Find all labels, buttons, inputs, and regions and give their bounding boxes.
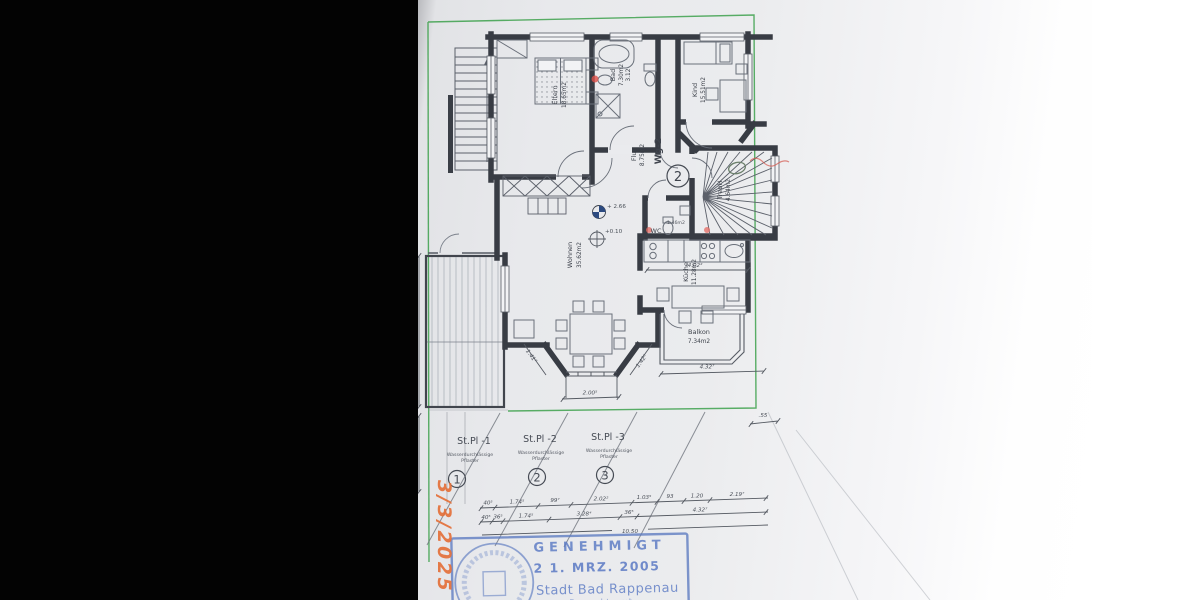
room-area-treph: 4.64m2 xyxy=(726,179,732,202)
dim-r1-4: 2.02² xyxy=(594,496,609,503)
stall2-surface-line1: Wasserdurchlässige xyxy=(518,450,564,456)
stall1-label: St.Pl -1 xyxy=(457,436,491,447)
dim-balcony: 4.32⁷ xyxy=(700,364,715,371)
room-width-bad: 3.12 xyxy=(626,68,632,81)
stamp-date-text: 2 1. MRZ. 2005 xyxy=(533,558,660,576)
dim-r1-3: 99⁷ xyxy=(550,497,560,504)
room-area-flur: 8.75m2 xyxy=(640,144,646,167)
dim-r1-7: 1.20 xyxy=(691,493,704,499)
dimension-lines xyxy=(418,253,780,535)
stall2-label: St.Pl -2 xyxy=(523,434,557,445)
room-label-kind: Kind xyxy=(691,83,699,97)
room-label-flur: Flur xyxy=(630,149,638,162)
room-label-eltern: Eltern xyxy=(551,85,559,104)
stall3-label: St.Pl -3 xyxy=(591,432,625,443)
stamp-city-text: Stadt Bad Rappenau xyxy=(536,581,679,599)
handwritten-date: 3/3/2025 xyxy=(433,480,455,593)
parking-area: St.Pl -1 Wasserdurchlässige Pflaster 1 S… xyxy=(427,412,705,548)
dim-r2-5: 36⁵ xyxy=(624,509,633,516)
room-area-bad: 7.30m2 xyxy=(619,64,625,87)
stamp-approved-text: GENEHMIGT xyxy=(533,538,666,556)
room-area-wc: 1.46m2 xyxy=(667,220,685,226)
dim-r2-1: 40⁵ xyxy=(481,514,490,521)
room-label-treph: TrepH xyxy=(716,181,724,201)
dim-r2-6: 4.32⁷ xyxy=(693,507,708,514)
stall3-surface-line2: Pflaster xyxy=(600,454,618,460)
unit-label: Wg-2 xyxy=(654,138,664,164)
stall1-surface-line2: Pflaster xyxy=(461,458,479,464)
dim-r1-6: 93 xyxy=(666,494,674,500)
dim-r1-8: 2.19⁷ xyxy=(730,491,745,498)
eltern-furniture xyxy=(497,40,598,104)
bay-window xyxy=(566,372,617,376)
kind-furniture xyxy=(684,42,747,112)
stall2-surface-line2: Pflaster xyxy=(532,456,550,462)
dim-r2-2: 36⁵ xyxy=(493,514,502,521)
room-area-balkon: 7.34m2 xyxy=(688,339,711,345)
dim-kitchen: 4.02² xyxy=(688,262,703,269)
floorplan-photo: + 2.66 +0.10 Eltern 18.65m2 Bad 7.30m2 3… xyxy=(418,0,1092,600)
stall3-surface-line1: Wasserdurchlässige xyxy=(586,448,632,454)
unit-label-group: Wg-2 2 xyxy=(654,138,689,187)
pergola-band xyxy=(503,176,590,214)
left-black-bar xyxy=(0,0,418,600)
dim-bay-mid: 2.00⁵ xyxy=(583,390,598,397)
interior-stairs xyxy=(703,152,772,235)
room-area-eltern: 18.65m2 xyxy=(562,82,568,108)
room-area-kind: 15.51m2 xyxy=(701,77,707,103)
room-label-bad: Bad xyxy=(609,69,617,82)
approval-stamp: GENEHMIGT 2 1. MRZ. 2005 Stadt Bad Rappe… xyxy=(451,534,689,600)
dim-r2-4: 3.28⁴ xyxy=(577,511,592,518)
level-entry-label: +0.10 xyxy=(605,229,623,235)
stall3-number: 3 xyxy=(601,469,608,483)
dim-r2-3: 1.74⁵ xyxy=(519,513,534,520)
level-upper-label: + 2.66 xyxy=(607,204,626,210)
room-label-balkon: Balkon xyxy=(688,328,710,336)
room-label-wc: WC xyxy=(651,227,662,235)
dim-r1-5: 1.03⁵ xyxy=(637,494,652,501)
dim-r1-1: 40⁵ xyxy=(483,500,492,507)
floorplan-drawing: + 2.66 +0.10 Eltern 18.65m2 Bad 7.30m2 3… xyxy=(418,0,1092,600)
right-white-margin xyxy=(1092,0,1200,600)
screenshot-root: + 2.66 +0.10 Eltern 18.65m2 Bad 7.30m2 3… xyxy=(0,0,1200,600)
unit-number: 2 xyxy=(674,170,682,185)
elevation-markers: + 2.66 +0.10 xyxy=(588,204,626,248)
building-walls xyxy=(488,34,775,374)
room-label-wohnen: Wohnen xyxy=(566,242,574,268)
terrace xyxy=(426,234,504,407)
dim-bay-right: 1.42⁵ xyxy=(635,353,649,369)
dim-r1-2: 1.74⁵ xyxy=(510,499,525,506)
bathroom-fixtures xyxy=(594,40,656,118)
stall2-number: 2 xyxy=(533,471,540,485)
dim-offset: .55 xyxy=(759,413,768,419)
stall1-surface-line1: Wasserdurchlässige xyxy=(447,452,493,458)
room-area-wohnen: 35.62m2 xyxy=(577,242,583,268)
